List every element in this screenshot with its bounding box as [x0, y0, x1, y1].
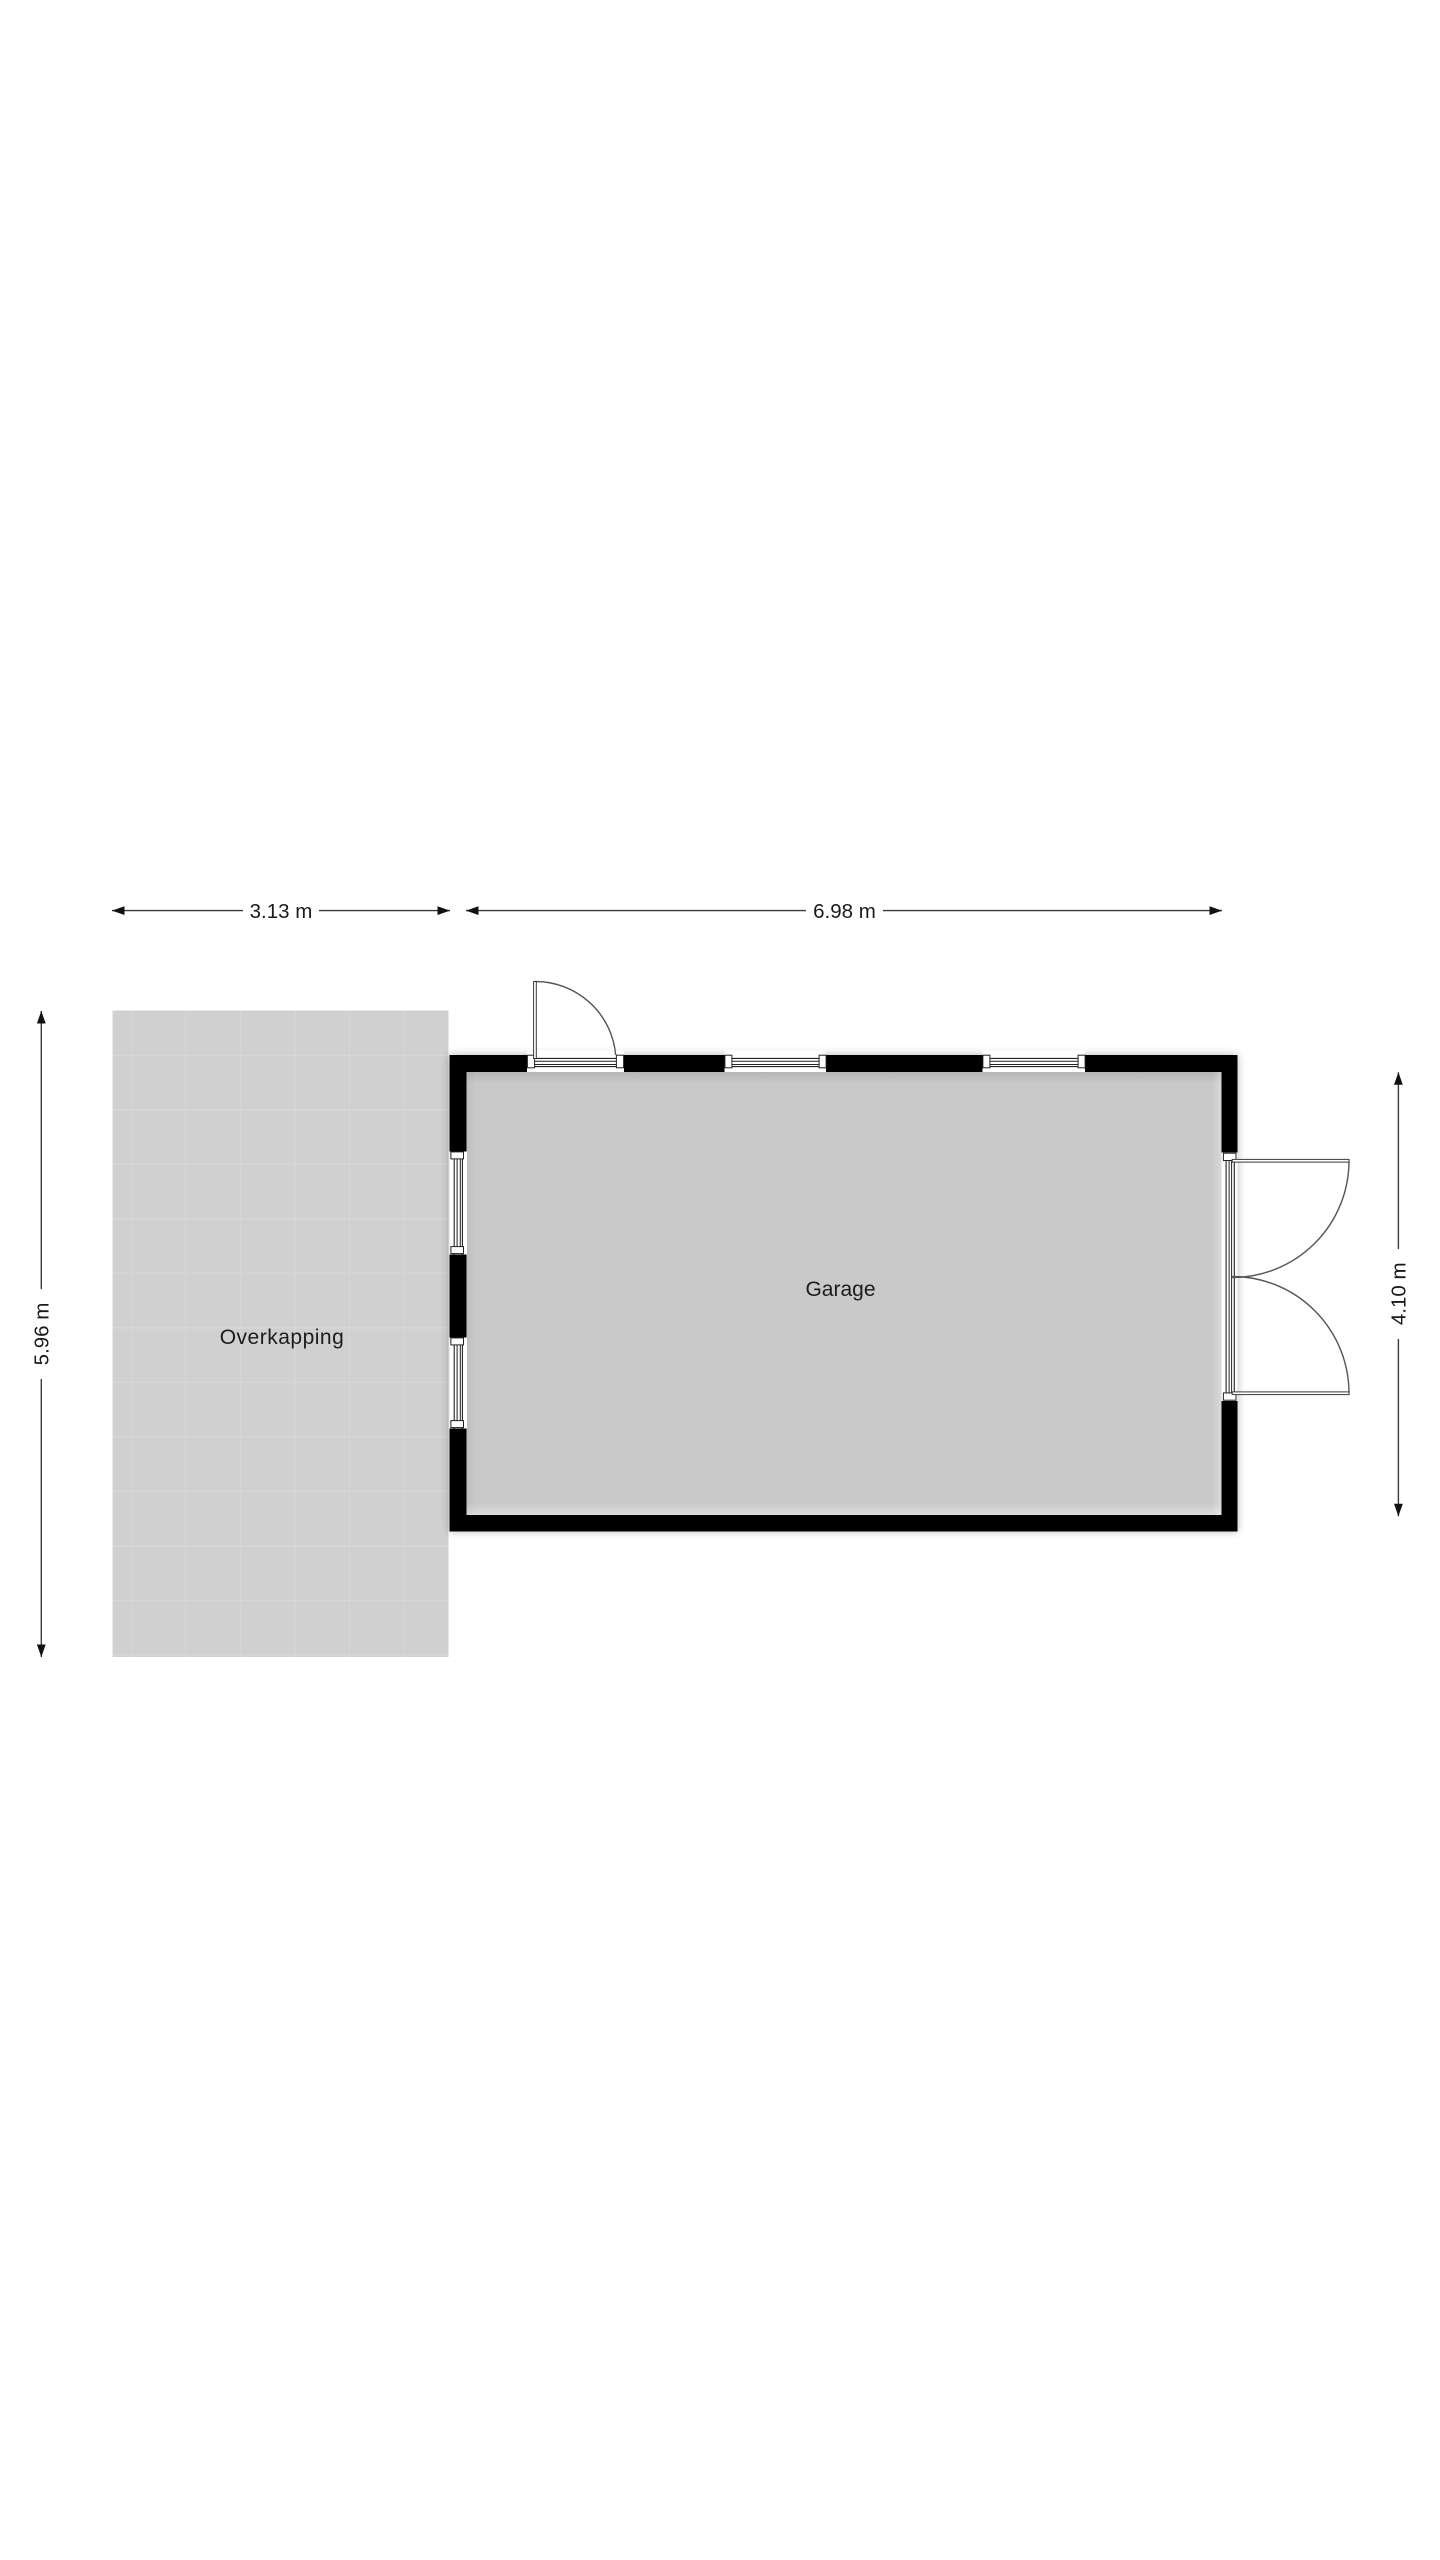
svg-text:Garage: Garage: [805, 1278, 875, 1301]
svg-text:Overkapping: Overkapping: [220, 1326, 345, 1349]
svg-text:4.10 m: 4.10 m: [1388, 1262, 1411, 1325]
svg-text:6.98 m: 6.98 m: [813, 900, 876, 923]
svg-text:3.13 m: 3.13 m: [250, 900, 313, 923]
svg-text:5.96 m: 5.96 m: [31, 1303, 54, 1366]
